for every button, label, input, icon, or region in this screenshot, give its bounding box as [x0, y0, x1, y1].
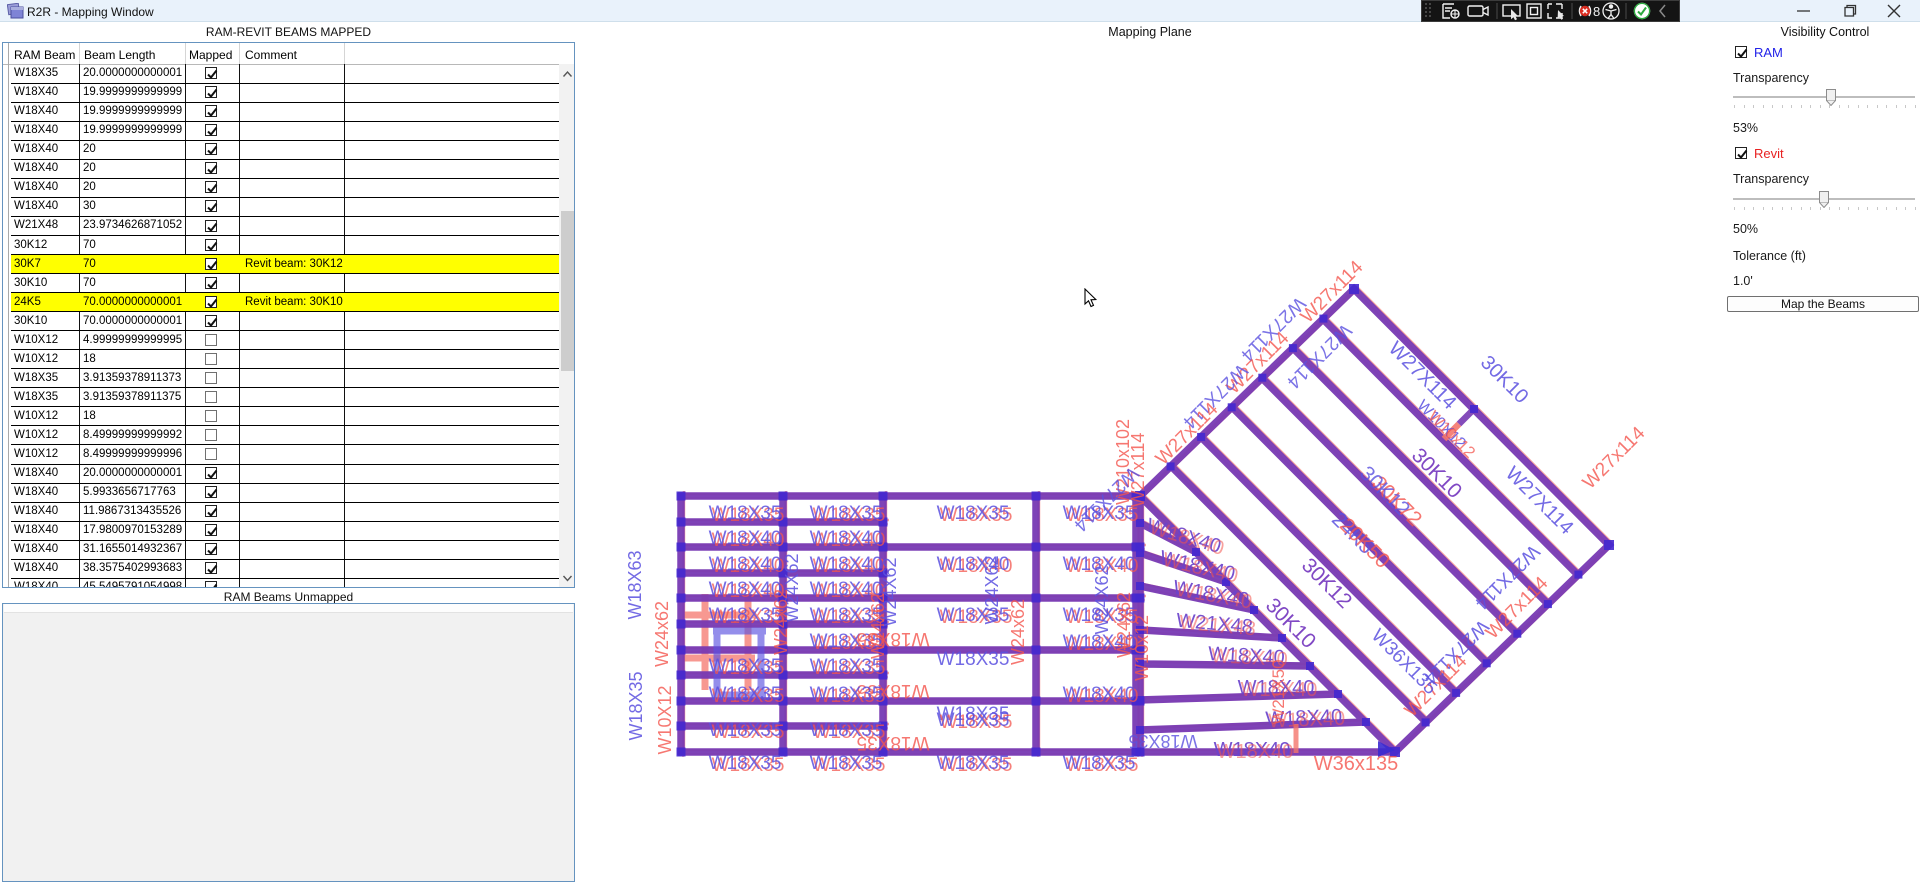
svg-text:W10x12: W10x12 — [1132, 615, 1152, 681]
svg-text:W18X40: W18X40 — [810, 528, 883, 549]
svg-text:W18X40: W18X40 — [709, 554, 782, 575]
svg-text:W18X35: W18X35 — [709, 684, 782, 705]
svg-text:W18X35: W18X35 — [937, 710, 1010, 731]
svg-text:30K12: 30K12 — [1355, 462, 1414, 521]
svg-text:W18X35: W18X35 — [937, 503, 1010, 524]
svg-text:W18X40: W18X40 — [709, 528, 782, 549]
svg-text:30K10: 30K10 — [1476, 352, 1532, 408]
svg-text:W18X35: W18X35 — [709, 720, 782, 741]
svg-text:W18X35: W18X35 — [709, 503, 782, 524]
svg-text:W24x62: W24x62 — [1008, 599, 1028, 665]
svg-text:20K50: 20K50 — [1335, 514, 1394, 573]
svg-text:W18X35: W18X35 — [810, 503, 883, 524]
svg-text:W18X35: W18X35 — [709, 656, 782, 677]
svg-text:W24x62: W24x62 — [1114, 592, 1134, 658]
svg-text:W24x62: W24x62 — [868, 593, 888, 659]
svg-text:W18X35: W18X35 — [1128, 731, 1197, 751]
svg-text:W36x135: W36x135 — [1314, 753, 1399, 775]
svg-text:W18X63: W18X63 — [625, 550, 645, 619]
svg-text:W18X40: W18X40 — [1217, 741, 1294, 763]
svg-text:W18X35: W18X35 — [810, 684, 883, 705]
svg-text:W24X62: W24X62 — [1092, 565, 1112, 634]
svg-text:W24x62: W24x62 — [771, 589, 791, 655]
svg-text:W24x62: W24x62 — [652, 601, 672, 667]
svg-text:W18X35: W18X35 — [937, 753, 1010, 774]
svg-text:W18X35: W18X35 — [810, 753, 883, 774]
svg-text:W27x114: W27x114 — [1579, 423, 1650, 494]
svg-text:W18X35: W18X35 — [857, 732, 930, 753]
svg-text:W21X50: W21X50 — [1269, 659, 1288, 724]
svg-text:W27X114: W27X114 — [1282, 319, 1355, 392]
svg-text:W18X35: W18X35 — [709, 753, 782, 774]
svg-text:W18X35: W18X35 — [937, 649, 1010, 670]
svg-text:W18X35: W18X35 — [626, 671, 646, 740]
svg-text:W24X62: W24X62 — [982, 555, 1002, 624]
svg-text:W10X12: W10X12 — [655, 685, 675, 754]
svg-text:W18X35: W18X35 — [1063, 753, 1136, 774]
svg-text:W18X40: W18X40 — [1063, 684, 1136, 705]
svg-text:W18X40: W18X40 — [810, 554, 883, 575]
